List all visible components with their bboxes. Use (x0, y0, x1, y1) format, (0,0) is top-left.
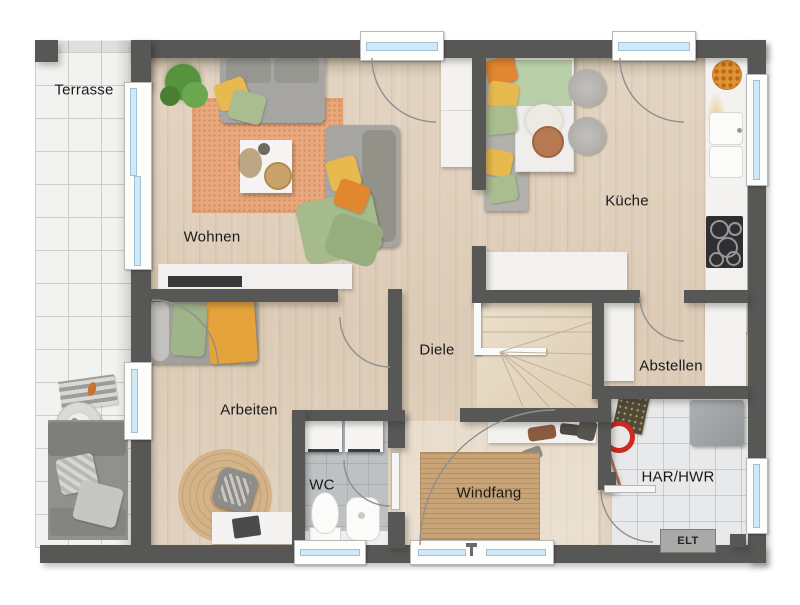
room-label-wc: WC (309, 477, 334, 494)
sliding-door-glass (130, 88, 137, 176)
office-terrace-door (124, 362, 152, 440)
elt-label: ELT (677, 535, 698, 547)
wc-cabinet (345, 420, 383, 452)
wall-living-kitchen (472, 58, 486, 190)
room-label-diele: Diele (419, 342, 454, 359)
entry-door-glass (418, 549, 466, 556)
table-vase (258, 143, 270, 155)
terrace-top-shadow (58, 41, 131, 52)
wc-cabinet-handle (308, 449, 339, 452)
entry-sidelight-glass (486, 549, 546, 556)
cooktop-burner (728, 222, 742, 236)
dining-chair (568, 69, 606, 107)
office-terrace-door-glass (131, 369, 138, 433)
elt-panel: ELT (660, 529, 716, 553)
laptop (232, 515, 262, 539)
room-label-windfang: Windfang (457, 485, 522, 502)
kitchen-sideboard (486, 252, 627, 290)
sofa-back-cushion (274, 57, 319, 83)
wall-wc-north (292, 410, 405, 421)
wc-cabinet-handle (348, 449, 380, 452)
bidet (346, 497, 380, 541)
kitchen-sink (709, 146, 743, 178)
daybed-throw-yellow (206, 298, 258, 364)
wall-storage-west (592, 303, 604, 399)
wall-utility-north (592, 386, 748, 399)
bidet-drain (358, 512, 365, 519)
table-tray (264, 162, 292, 190)
terrace-door-top-1-glass (366, 42, 438, 51)
wall-wc-west (292, 410, 305, 548)
sliding-door-glass (134, 176, 141, 266)
wc-door-leaf (391, 452, 400, 510)
room-label-terrasse: Terrasse (54, 82, 113, 99)
floor-plan: ELT (0, 0, 800, 605)
wc-cabinet (305, 420, 342, 452)
dining-chair (568, 117, 606, 155)
copper-bowl (532, 126, 564, 158)
wc-window-glass (300, 549, 360, 556)
terrace-corner-wall (35, 40, 58, 62)
storage-tall-cabinet (705, 303, 746, 386)
fruit-bowl (712, 60, 742, 90)
bench-pillow-green (484, 104, 519, 135)
wall-wc-east-bottom (388, 512, 405, 548)
daybed-pillow-green (170, 303, 208, 357)
room-label-wohnen: Wohnen (184, 229, 241, 246)
wall-utility-corner-stub (730, 534, 746, 547)
hall-wardrobe (441, 55, 472, 167)
storage-cabinet (604, 303, 634, 381)
faucet (737, 128, 742, 133)
table-runner-green (515, 60, 572, 106)
daybed-roll-pillow (151, 301, 169, 361)
potted-plant-leaves (160, 86, 180, 106)
potted-plant-leaves (182, 82, 208, 108)
washing-machine (690, 400, 744, 446)
wall-kitchen-hall (472, 290, 640, 303)
lounge-back-cushion (48, 422, 126, 456)
room-label-kueche: Küche (605, 193, 649, 210)
stairs-floor (477, 303, 593, 408)
tv (168, 276, 242, 287)
room-label-arbeiten: Arbeiten (220, 402, 277, 419)
utility-window-glass (753, 464, 760, 528)
wall-kitchen-hall-right (684, 290, 748, 303)
wall-living-office (151, 289, 338, 302)
stair-rail (474, 348, 546, 355)
wall-windfang-north (460, 408, 611, 422)
hall-wardrobe-divider (441, 110, 472, 111)
terrace-door-top-2-glass (618, 42, 690, 51)
room-label-abstellen: Abstellen (639, 358, 703, 375)
outer-wall-left-post (131, 40, 151, 88)
toilet-bowl (311, 492, 339, 534)
cooktop-burner (726, 251, 741, 266)
room-label-har-hwr: HAR/HWR (641, 469, 714, 486)
wall-hall-office (388, 289, 402, 413)
entry-door-handle (470, 543, 473, 556)
kitchen-window-glass (753, 80, 760, 180)
bench-pillow-green (485, 174, 519, 205)
cooktop-burner (709, 252, 724, 267)
utility-door-leaf (604, 485, 656, 493)
